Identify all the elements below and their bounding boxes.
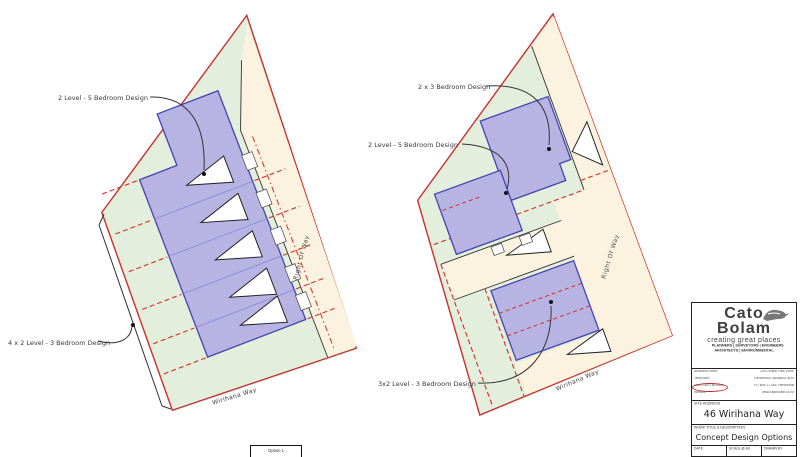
- drawn-by-label: DRAWN BY: [764, 447, 783, 450]
- option-label-box: Option 1: [250, 445, 302, 457]
- logo-section: Cato Bolam creating great places PLANNER…: [692, 303, 796, 369]
- contact-label: Website:: [694, 391, 707, 394]
- scale-label: SCALE @ A3: [729, 447, 748, 450]
- contact-row: Telephone: Henderson, Auckland 0610: [692, 376, 796, 383]
- contact-value: Henderson, Auckland 0610: [754, 377, 794, 380]
- right-label-top: 2 x 3 Bedroom Design: [418, 83, 490, 91]
- title-block: Cato Bolam creating great places PLANNER…: [691, 302, 797, 457]
- disciplines-line2: ARCHITECTS | ENVIRONMENTAL: [712, 349, 776, 353]
- right-label-mid: 2 Level - 5 Bedroom Design: [368, 141, 458, 149]
- disciplines-line1: PLANNERS | SURVEYORS | ENGINEERS: [712, 344, 776, 348]
- site-plan-right: [359, 13, 675, 415]
- site-address-value: 46 Wirihana Way: [692, 409, 796, 420]
- contact-label: Auckland Office:: [694, 370, 718, 373]
- date-label: DATE: [694, 447, 713, 450]
- brand-name-line2: Bolam: [692, 321, 796, 336]
- contact-label: 0800 CATO BOLAM: [694, 384, 724, 387]
- contact-value: www.catobolam.co.nz: [762, 391, 794, 394]
- site-address-section: SITE ADDRESS 46 Wirihana Way: [692, 401, 796, 425]
- left-label-top: 2 Level - 5 Bedroom Design: [58, 94, 148, 102]
- option-label: Option 1: [259, 449, 294, 453]
- work-title-label: WORK TITLE & DESCRIPTION: [694, 426, 755, 430]
- site-plan-left: [50, 15, 372, 417]
- date-cell: DATE: [692, 446, 727, 457]
- contact-row: 0800 CATO BOLAM PO Box 21 445, Henderson: [692, 383, 796, 390]
- contact-row: Auckland Office: 108 Central Park Drive,: [692, 369, 796, 376]
- left-label-bottom: 4 x 2 Level - 3 Bedroom Design: [8, 339, 110, 347]
- contact-value: 108 Central Park Drive,: [760, 370, 794, 373]
- footer-row: DATE SCALE @ A3 DRAWN BY: [692, 446, 796, 457]
- work-title-value: Concept Design Options: [692, 433, 796, 442]
- contact-row: Website: www.catobolam.co.nz: [692, 390, 796, 397]
- right-label-bottom: 3x2 Level - 3 Bedroom Design: [378, 380, 476, 388]
- work-title-section: WORK TITLE & DESCRIPTION Concept Design …: [692, 425, 796, 446]
- contact-value: PO Box 21 445, Henderson: [754, 384, 794, 387]
- drawn-by-cell: DRAWN BY: [762, 446, 796, 457]
- scale-cell: SCALE @ A3: [727, 446, 762, 457]
- site-address-label: SITE ADDRESS: [694, 402, 755, 406]
- site-plans-drawing: 2 Level - 5 Bedroom Design 4 x 2 Level -…: [0, 0, 800, 457]
- concept-design-sheet: 2 Level - 5 Bedroom Design 4 x 2 Level -…: [0, 0, 800, 457]
- contact-label: Telephone:: [694, 377, 710, 380]
- contact-section: Auckland Office: 108 Central Park Drive,…: [692, 369, 796, 401]
- bird-logo-icon: [762, 307, 788, 323]
